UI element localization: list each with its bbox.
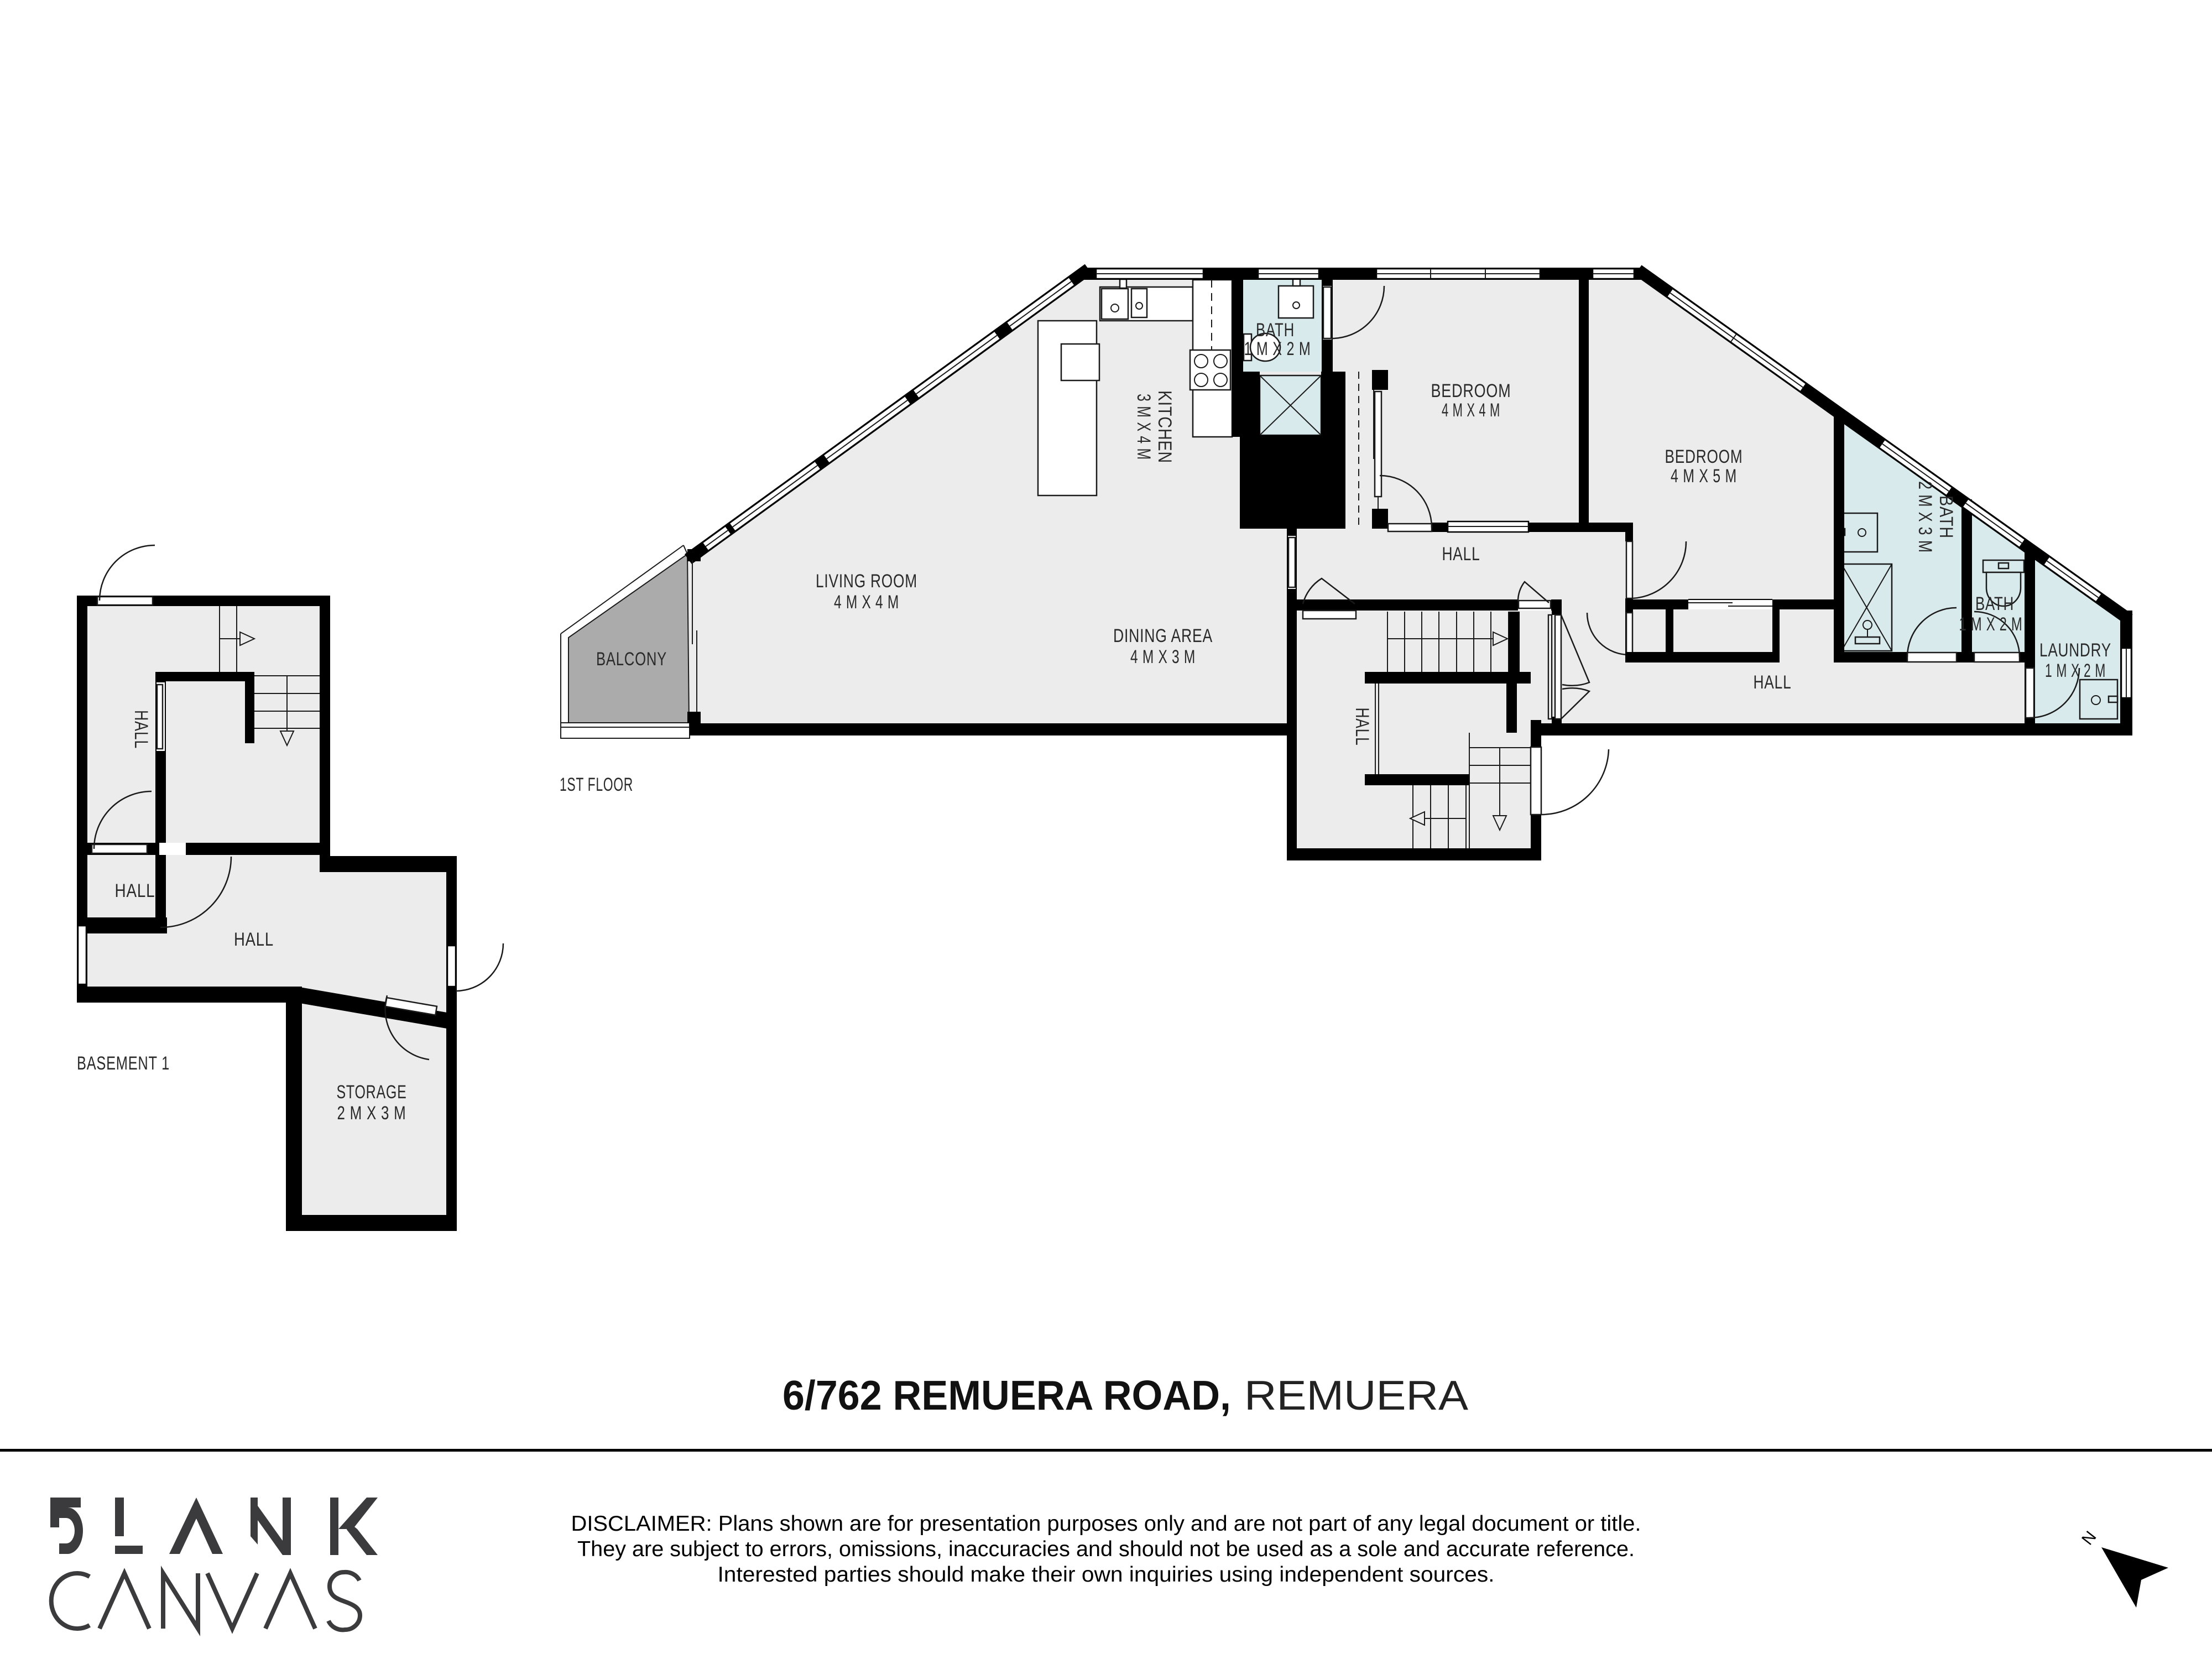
svg-text:1 M X 2 M: 1 M X 2 M bbox=[1959, 614, 2023, 635]
svg-text:2 M X 3 M: 2 M X 3 M bbox=[1914, 481, 1936, 553]
svg-text:BASEMENT 1: BASEMENT 1 bbox=[77, 1053, 170, 1074]
svg-text:2 M X 3 M: 2 M X 3 M bbox=[337, 1103, 406, 1124]
svg-text:BATH: BATH bbox=[1936, 495, 1957, 539]
svg-text:Interested parties should make: Interested parties should make their own… bbox=[718, 1563, 1495, 1587]
svg-text:STORAGE: STORAGE bbox=[337, 1082, 407, 1103]
svg-text:HALL: HALL bbox=[115, 880, 155, 901]
svg-text:BATH: BATH bbox=[1975, 593, 2014, 614]
svg-text:4 M X 4 M: 4 M X 4 M bbox=[834, 592, 899, 613]
svg-text:HALL: HALL bbox=[131, 710, 152, 749]
svg-text:They are subject to errors, om: They are subject to errors, omissions, i… bbox=[577, 1537, 1635, 1561]
svg-text:HALL: HALL bbox=[1442, 544, 1480, 565]
svg-text:1ST FLOOR: 1ST FLOOR bbox=[560, 774, 633, 795]
svg-text:BEDROOM: BEDROOM bbox=[1665, 446, 1743, 467]
svg-text:3 M X 4 M: 3 M X 4 M bbox=[1133, 394, 1154, 460]
svg-text:REMUERA: REMUERA bbox=[1244, 1372, 1468, 1418]
svg-text:1 M X 2 M: 1 M X 2 M bbox=[2045, 660, 2106, 681]
svg-text:HALL: HALL bbox=[234, 929, 274, 950]
svg-text:DINING AREA: DINING AREA bbox=[1113, 625, 1213, 646]
svg-text:KITCHEN: KITCHEN bbox=[1154, 390, 1175, 463]
svg-text:LIVING ROOM: LIVING ROOM bbox=[816, 571, 917, 592]
svg-text:4 M X 5 M: 4 M X 5 M bbox=[1671, 466, 1737, 487]
svg-text:LAUNDRY: LAUNDRY bbox=[2039, 640, 2111, 661]
svg-text:HALL: HALL bbox=[1352, 708, 1373, 746]
svg-text:4 M X 3 M: 4 M X 3 M bbox=[1130, 646, 1196, 667]
svg-text:4 M X 4 M: 4 M X 4 M bbox=[1442, 400, 1500, 421]
svg-text:DISCLAIMER: Plans shown are fo: DISCLAIMER: Plans shown are for presenta… bbox=[571, 1512, 1641, 1536]
svg-text:1 M X 2 M: 1 M X 2 M bbox=[1244, 338, 1311, 359]
svg-text:BALCONY: BALCONY bbox=[596, 649, 667, 670]
svg-text:HALL: HALL bbox=[1754, 672, 1792, 693]
svg-text:BEDROOM: BEDROOM bbox=[1431, 380, 1511, 401]
svg-text:BATH: BATH bbox=[1256, 320, 1295, 341]
svg-text:6/762 REMUERA ROAD,: 6/762 REMUERA ROAD, bbox=[782, 1372, 1231, 1418]
